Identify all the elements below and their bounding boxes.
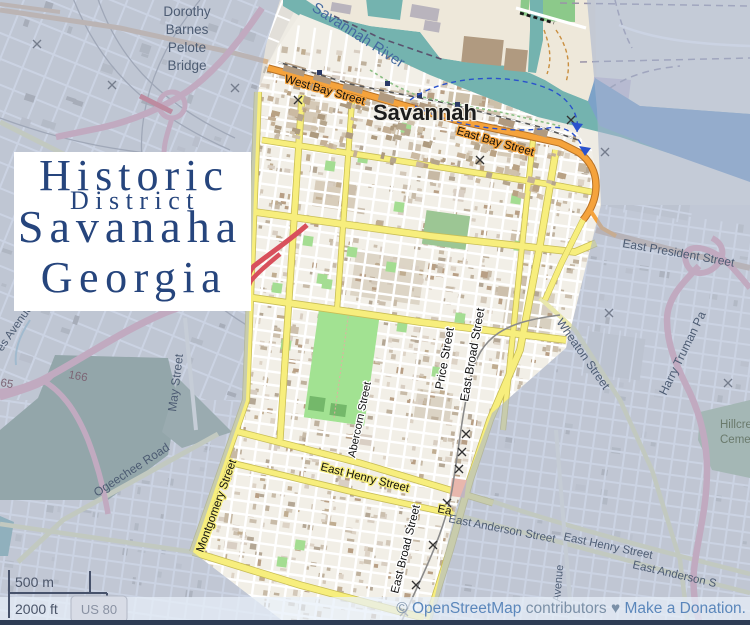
svg-text:© OpenStreetMap contributors ♥: © OpenStreetMap contributors ♥ Make a Do…	[396, 600, 746, 617]
svg-text:Hillcre: Hillcre	[720, 419, 750, 431]
svg-text:65: 65	[0, 377, 14, 391]
svg-text:Georgia: Georgia	[41, 253, 227, 302]
svg-text:Savannah: Savannah	[373, 100, 477, 125]
svg-text:Dorothy: Dorothy	[163, 4, 211, 19]
svg-text:Pelote: Pelote	[168, 40, 206, 55]
svg-text:Bridge: Bridge	[167, 58, 206, 73]
svg-text:Ceme: Ceme	[720, 434, 750, 446]
svg-text:500 m: 500 m	[15, 574, 54, 590]
svg-text:2000 ft: 2000 ft	[15, 601, 58, 617]
svg-text:Barnes: Barnes	[166, 22, 209, 37]
svg-text:US 80: US 80	[81, 602, 117, 617]
svg-text:Savanaha: Savanaha	[18, 201, 242, 252]
